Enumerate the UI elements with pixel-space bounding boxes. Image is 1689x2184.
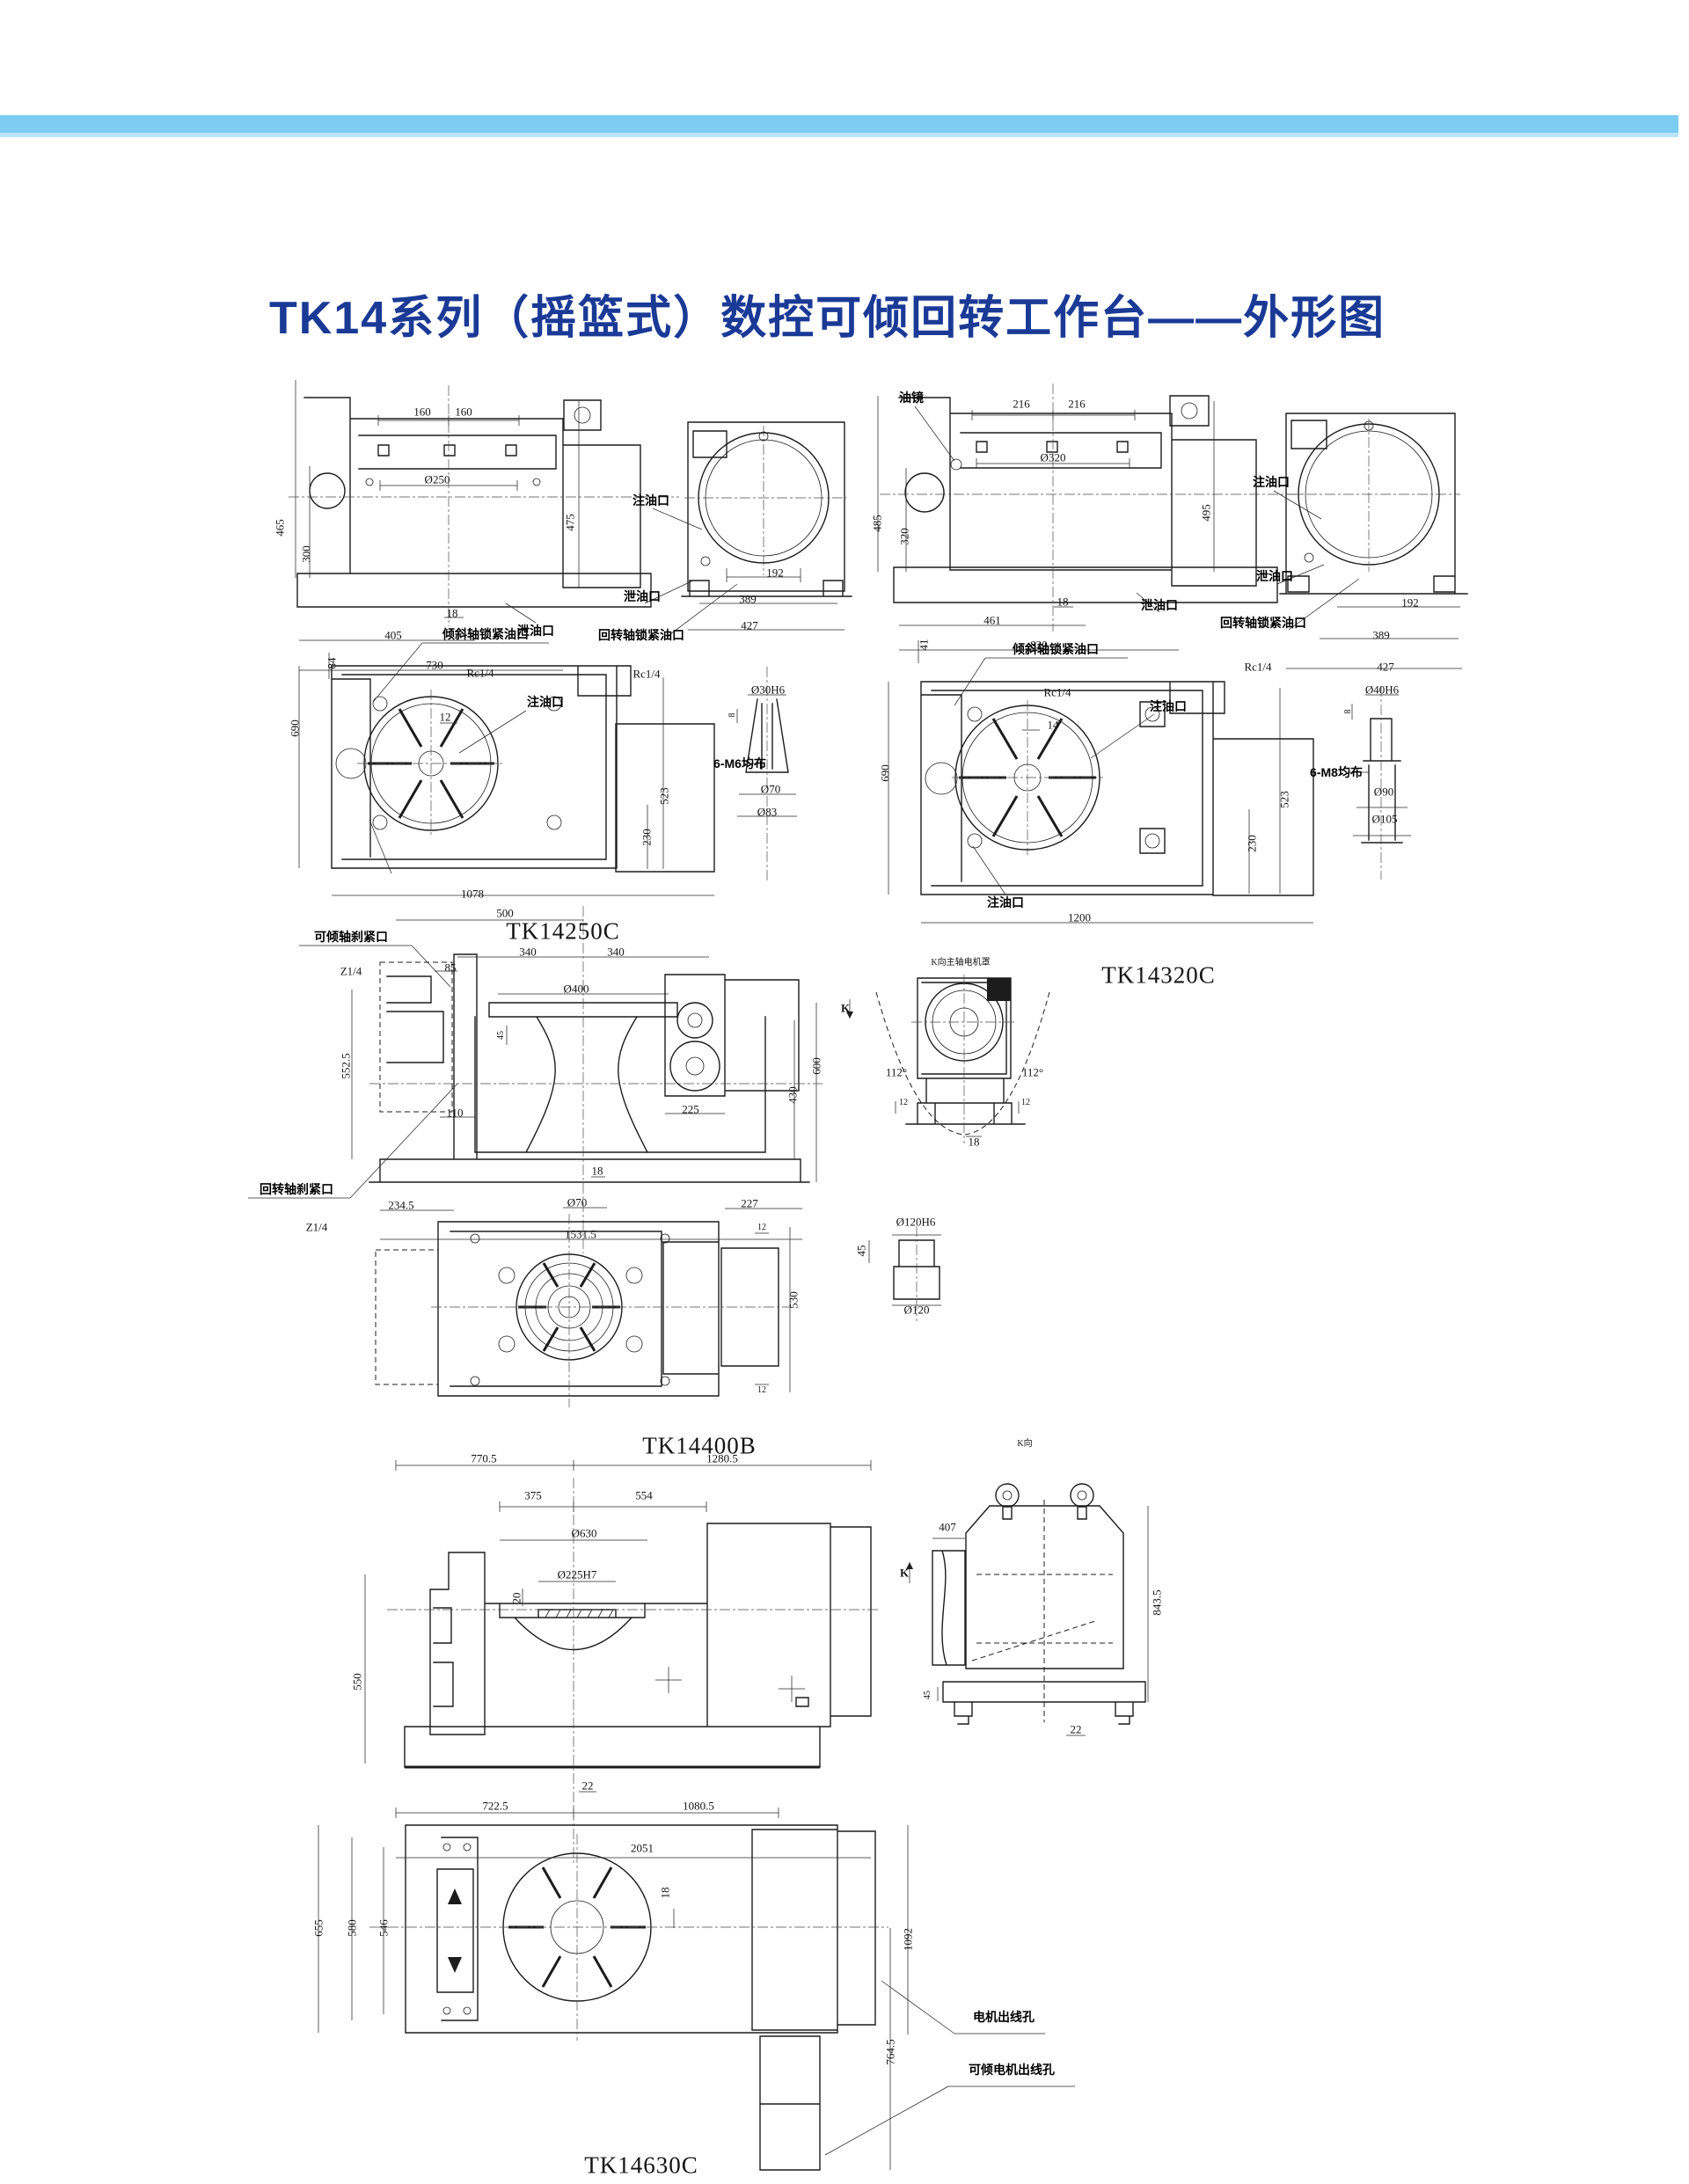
dim-label: 340 xyxy=(519,946,537,958)
dim-label: 12 xyxy=(440,712,451,723)
dim-label: 546 xyxy=(378,1919,390,1937)
part-label: 6-M6均布 xyxy=(713,757,766,770)
tk14630c-plan-view xyxy=(318,1825,1075,2170)
dim-label: 1531.5 xyxy=(565,1229,596,1240)
dim-label: Ø40H6 xyxy=(1365,684,1399,696)
dim-label: 41 xyxy=(918,639,930,651)
dim-label: 160 xyxy=(455,406,472,418)
dim-label: 234.5 xyxy=(388,1200,413,1211)
dim-label: 690 xyxy=(880,764,891,782)
dim-label: 523 xyxy=(659,787,670,805)
part-label: 6-M8均布 xyxy=(1310,766,1363,778)
dim-label: 340 xyxy=(607,946,625,958)
dim-label: 22 xyxy=(1071,1724,1082,1735)
dim-label: 192 xyxy=(1401,597,1419,609)
dim-label: 552.5 xyxy=(340,1053,352,1078)
dim-label: Rc1/4 xyxy=(1043,687,1071,698)
tk14250c-side-view xyxy=(506,422,852,637)
dim-label: 18 xyxy=(1057,596,1069,608)
dim-label: 1280.5 xyxy=(706,1453,738,1465)
dim-label: 12 xyxy=(757,1223,766,1232)
dim-label: Ø70 xyxy=(567,1197,587,1209)
tk14400b-plan-view xyxy=(376,1214,792,1407)
dim-label: Ø120 xyxy=(904,1304,930,1316)
dim-label: Ø400 xyxy=(564,983,589,995)
dim-label: 461 xyxy=(983,615,1001,626)
dim-label: 18 xyxy=(969,1136,980,1148)
dim-label: 112° xyxy=(886,1067,907,1078)
dim-label: 1080.5 xyxy=(683,1801,714,1812)
dim-label: 110 xyxy=(446,1107,463,1119)
dim-label: 192 xyxy=(766,567,784,579)
dim-label: Rc1/4 xyxy=(466,668,494,679)
dim-label: 427 xyxy=(741,620,758,632)
part-label: 注油口 xyxy=(527,696,564,708)
tk14250c-spigot-detail xyxy=(737,667,797,881)
model-label: TK14320C xyxy=(1101,964,1216,988)
dim-label: 20 xyxy=(511,1593,523,1604)
dim-label: 227 xyxy=(741,1198,758,1209)
part-label: 泄油口 xyxy=(1141,599,1178,611)
dim-label: Z1/4 xyxy=(340,966,362,977)
dim-label: 427 xyxy=(1377,661,1394,673)
part-label: 泄油口 xyxy=(1256,570,1293,582)
dim-label: 530 xyxy=(788,1291,800,1309)
dim-label: 12 xyxy=(899,1099,908,1107)
tk14320c-spigot-detail xyxy=(1349,686,1411,880)
dim-label: Ø120H6 xyxy=(896,1216,936,1228)
part-label: 倾斜轴锁紧油口 xyxy=(442,628,529,640)
dim-label: 523 xyxy=(1279,791,1291,808)
tk14320c-plan-view xyxy=(888,658,1313,923)
dim-label: 216 xyxy=(1013,398,1030,410)
part-label: 回转轴锁紧油口 xyxy=(598,629,684,641)
dim-label: Ø630 xyxy=(572,1528,597,1539)
part-label: 注油口 xyxy=(1253,476,1290,488)
technical-drawings xyxy=(0,0,1689,2184)
dim-label: Rc1/4 xyxy=(1244,661,1271,673)
dim-label: 45 xyxy=(497,1031,506,1040)
model-label: TK14630C xyxy=(584,2154,698,2178)
tk14630c-front-view xyxy=(365,1460,880,1863)
dim-label: 550 xyxy=(352,1673,363,1691)
dim-label: 2051 xyxy=(631,1843,654,1854)
dim-label: 45 xyxy=(856,1245,867,1257)
dim-label: 18 xyxy=(660,1888,671,1899)
dim-label: 1092 xyxy=(903,1928,914,1951)
dim-label: 45 xyxy=(924,1691,932,1699)
dim-label: 770.5 xyxy=(471,1453,496,1465)
dim-label: K向主轴电机罩 xyxy=(931,959,990,968)
dim-label: Ø320 xyxy=(1041,452,1066,464)
dim-label: 389 xyxy=(739,594,757,605)
dim-label: 485 xyxy=(872,515,883,532)
dim-label: 8 xyxy=(728,713,737,718)
dim-label: 225 xyxy=(682,1104,699,1115)
dim-label: 375 xyxy=(524,1490,542,1501)
part-label: 油镜 xyxy=(899,391,924,404)
part-label: 注油口 xyxy=(632,494,669,507)
dim-label: 12 xyxy=(757,1386,766,1395)
dim-label: Ø30H6 xyxy=(751,684,785,696)
dim-label: 495 xyxy=(1201,504,1212,522)
tk14320c-side-view xyxy=(1137,413,1467,668)
dim-label: Ø250 xyxy=(425,474,450,486)
dim-label: K向 xyxy=(1017,1440,1032,1449)
tk14250c-plan-view xyxy=(299,643,714,895)
dim-label: 18 xyxy=(447,608,458,619)
dim-label: 405 xyxy=(384,630,402,641)
part-label: 可倾轴刹紧口 xyxy=(314,931,388,943)
dim-label: Ø70 xyxy=(761,784,780,795)
dim-label: 8 xyxy=(1344,710,1353,714)
dim-label: 554 xyxy=(635,1490,653,1501)
dim-label: 84 xyxy=(326,658,338,669)
dim-label: Z1/4 xyxy=(306,1222,328,1233)
dim-label: Ø105 xyxy=(1372,814,1398,825)
dim-label: 1078 xyxy=(461,888,484,900)
part-label: 注油口 xyxy=(1150,700,1187,712)
dim-label: 730 xyxy=(426,660,443,671)
dim-label: 85 xyxy=(445,962,457,974)
part-label: 电机出线孔 xyxy=(973,2011,1035,2023)
dim-label: 22 xyxy=(582,1780,594,1792)
dim-label: 465 xyxy=(274,519,286,537)
dim-label: 320 xyxy=(899,528,910,545)
dim-label: 160 xyxy=(413,406,431,418)
dim-label: 1200 xyxy=(1068,912,1091,924)
dim-label: 843.5 xyxy=(1152,1589,1163,1615)
part-label: 倾斜轴锁紧油口 xyxy=(1013,643,1099,655)
tk14400b-side-view xyxy=(846,975,1049,1143)
dim-label: Rc1/4 xyxy=(632,668,660,680)
dim-label: Ø90 xyxy=(1374,786,1393,798)
dim-label: 475 xyxy=(565,514,576,531)
part-label: 可倾电机出线孔 xyxy=(969,2063,1055,2076)
dim-label: 690 xyxy=(289,719,301,737)
dim-label: 18 xyxy=(592,1165,603,1177)
dim-label: 112° xyxy=(1022,1067,1043,1078)
dim-label: 655 xyxy=(313,1919,325,1937)
dim-label: 764.5 xyxy=(885,2039,896,2064)
view-marker: K xyxy=(900,1567,909,1579)
dim-label: Ø225H7 xyxy=(558,1569,597,1581)
dim-label: 14 xyxy=(1048,719,1059,731)
dim-label: 230 xyxy=(1247,835,1258,852)
dim-label: 407 xyxy=(939,1522,956,1533)
part-label: 回转轴刹紧口 xyxy=(260,1183,333,1195)
dim-label: Ø83 xyxy=(757,807,777,818)
part-label: 回转轴锁紧油口 xyxy=(1220,617,1306,629)
part-label: 注油口 xyxy=(987,896,1024,909)
model-label: TK14250C xyxy=(506,920,620,944)
dim-label: 600 xyxy=(811,1057,823,1075)
model-label: TK14400B xyxy=(642,1435,757,1458)
part-label: 泄油口 xyxy=(624,590,661,603)
dim-label: 430 xyxy=(787,1086,799,1104)
dim-label: 12 xyxy=(1021,1099,1030,1107)
view-marker: K xyxy=(841,1003,850,1014)
dim-label: 389 xyxy=(1372,630,1390,641)
dim-label: 230 xyxy=(641,829,653,846)
dim-label: 722.5 xyxy=(482,1801,508,1812)
dim-label: 500 xyxy=(496,908,514,919)
dim-label: 216 xyxy=(1068,398,1086,410)
dim-label: 300 xyxy=(301,545,312,563)
dim-label: 580 xyxy=(347,1919,358,1937)
